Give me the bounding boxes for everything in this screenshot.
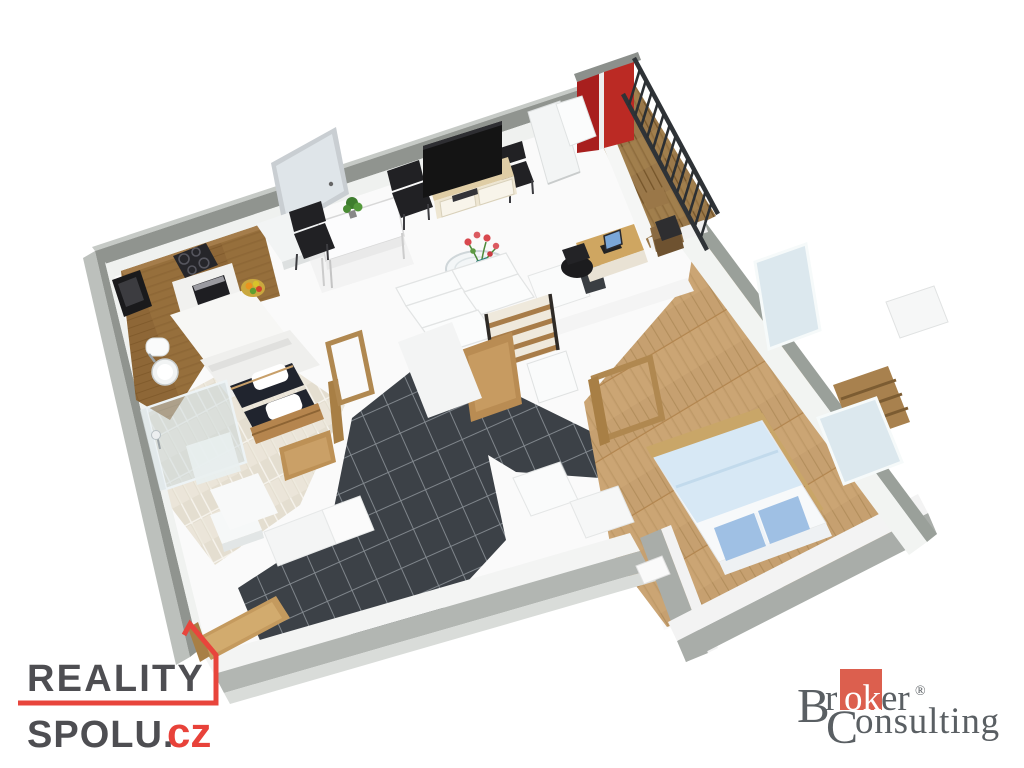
svg-text:C: C bbox=[826, 701, 858, 754]
svg-text:onsulting: onsulting bbox=[855, 701, 1000, 742]
svg-text:®: ® bbox=[915, 684, 926, 699]
svg-text:cz: cz bbox=[167, 709, 211, 756]
svg-text:SPOLU.: SPOLU. bbox=[27, 714, 174, 756]
svg-text:REALITY: REALITY bbox=[27, 658, 205, 700]
